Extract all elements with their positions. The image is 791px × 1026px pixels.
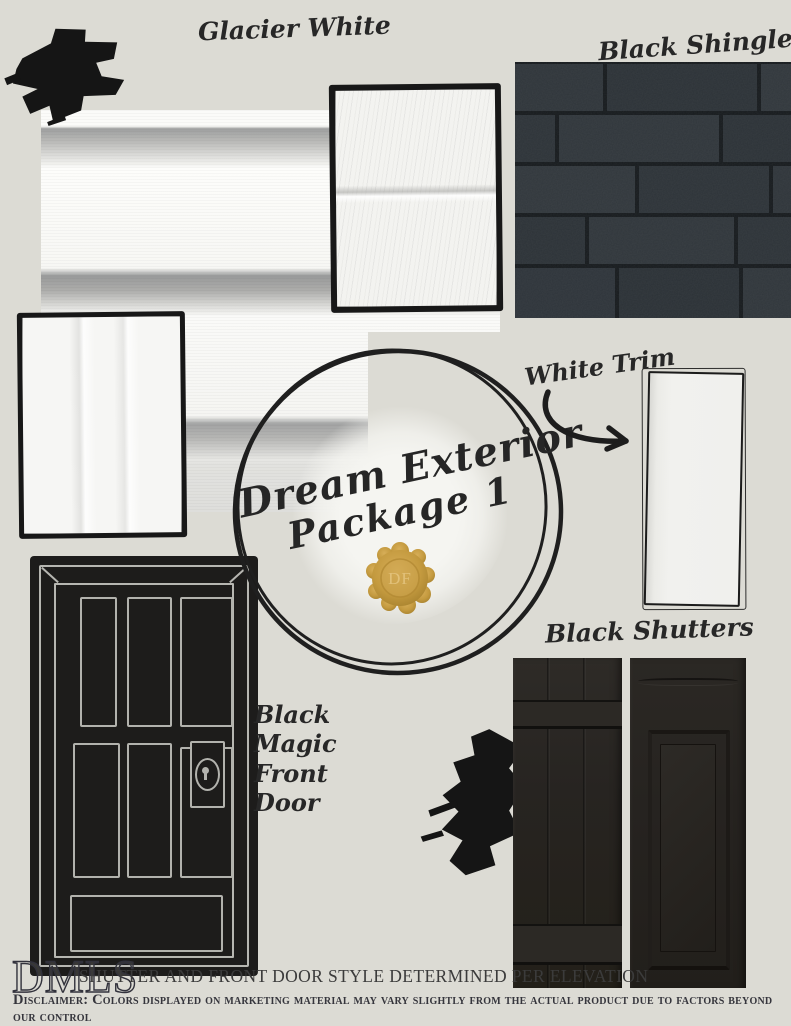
elevation-note: SHUTTER AND FRONT DOOR STYLE DETERMINED …	[79, 966, 648, 987]
door-label-line: Door	[254, 788, 337, 817]
seal-initials: DF	[388, 569, 412, 588]
shutter-groove	[638, 678, 738, 686]
door-handle-plate	[190, 741, 225, 808]
disclaimer-text: Disclaimer: Colors displayed on marketin…	[13, 992, 791, 1026]
wax-seal-icon: DF	[365, 541, 435, 615]
shutters-label: Black Shutters	[545, 612, 755, 648]
mood-board: Glacier White Black Shingles Dream Exter…	[0, 0, 791, 1024]
door-panel	[127, 597, 172, 727]
keyhole-icon	[204, 772, 207, 780]
arrow-icon	[532, 386, 650, 464]
door-label-line: Front	[254, 759, 337, 788]
trim-sample	[644, 371, 744, 607]
shutter-batten	[513, 700, 622, 729]
shingles-label: Black Shingles	[597, 23, 791, 67]
shutter-right-sample	[630, 658, 746, 988]
door-panel	[80, 597, 117, 727]
door-panel	[127, 743, 172, 878]
shutter-raised-panel	[660, 744, 716, 952]
shutter-batten	[513, 924, 622, 965]
shake-sample	[329, 83, 503, 313]
door-panel	[70, 895, 223, 952]
paint-swatch-icon	[0, 14, 133, 131]
door-knob-icon	[195, 758, 220, 791]
door-label-line: Magic	[254, 729, 337, 758]
door-panel	[73, 743, 120, 878]
board-sample	[17, 311, 187, 539]
shingles-sample-photo	[515, 62, 791, 318]
siding-label: Glacier White	[198, 11, 392, 47]
door-label-line: Black	[254, 700, 337, 729]
door-label: Black Magic Front Door	[254, 700, 337, 817]
shutter-left-sample	[513, 658, 622, 988]
